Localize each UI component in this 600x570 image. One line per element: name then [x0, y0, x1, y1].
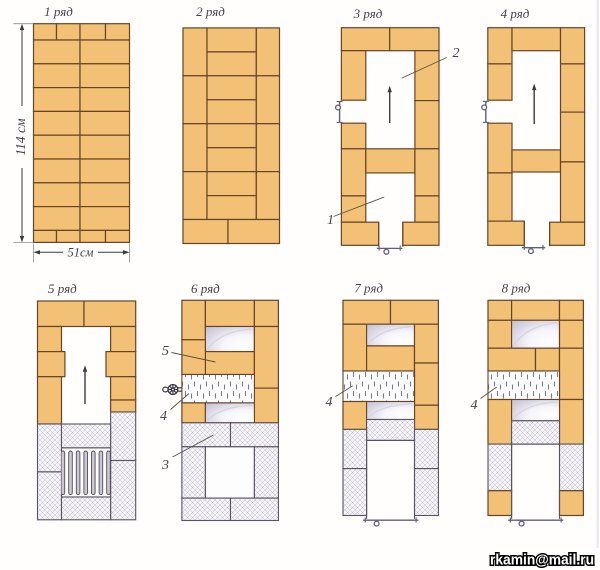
svg-text:2 ряд: 2 ряд	[196, 4, 225, 19]
svg-text:4 ряд: 4 ряд	[501, 6, 530, 21]
svg-text:3: 3	[161, 458, 169, 473]
svg-text:1: 1	[327, 213, 334, 228]
svg-text:3 ряд: 3 ряд	[353, 6, 383, 21]
svg-text:51см: 51см	[67, 246, 93, 260]
svg-text:5: 5	[162, 344, 169, 359]
svg-text:2: 2	[453, 46, 460, 61]
svg-text:4: 4	[326, 395, 333, 410]
svg-text:8 ряд: 8 ряд	[502, 281, 531, 296]
svg-text:5 ряд: 5 ряд	[48, 281, 77, 296]
svg-text:4: 4	[471, 398, 478, 413]
svg-text:rkamin@mail.ru: rkamin@mail.ru	[490, 553, 594, 569]
svg-text:7 ряд: 7 ряд	[354, 281, 383, 296]
svg-text:1 ряд: 1 ряд	[44, 4, 73, 19]
svg-text:4: 4	[160, 409, 167, 424]
svg-text:6 ряд: 6 ряд	[191, 281, 220, 296]
svg-text:114 см: 114 см	[13, 118, 28, 156]
